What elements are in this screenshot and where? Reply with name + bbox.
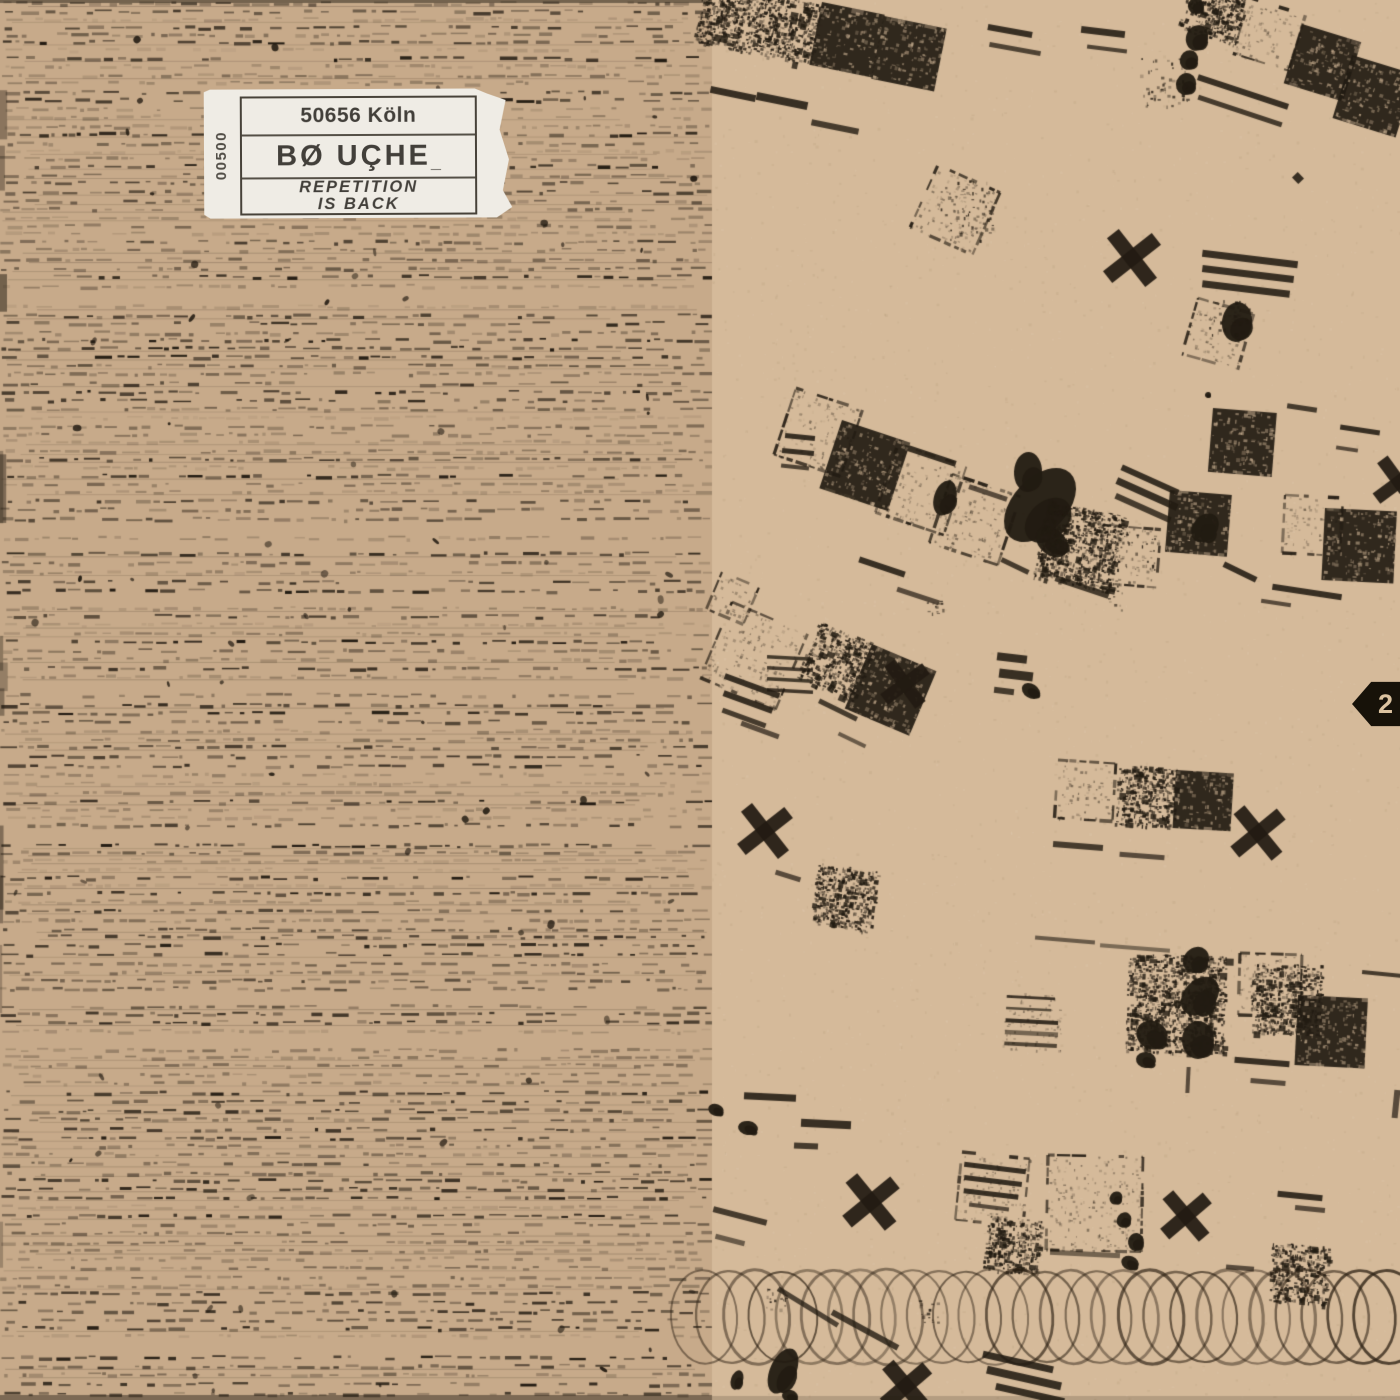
sticker-table: 50656 Köln BØ UÇHE _ REPETITION IS BACK <box>240 95 478 215</box>
stray-underscore-mark: _ <box>431 152 441 173</box>
subtitle-line1: REPETITION <box>299 178 418 196</box>
sticker-postcode: 50656 Köln <box>242 97 475 134</box>
edition-number: 00500 <box>213 118 231 194</box>
address-sticker: 00500 50656 Köln BØ UÇHE _ REPETITION IS… <box>204 88 513 218</box>
album-cover: 00500 50656 Köln BØ UÇHE _ REPETITION IS… <box>0 0 1400 1400</box>
side-2-number: 2 <box>1378 689 1400 720</box>
sticker-subtitle: REPETITION IS BACK <box>242 176 475 213</box>
artist-name-text: BØ UÇHE <box>276 140 431 174</box>
artist-name: BØ UÇHE _ <box>242 133 475 177</box>
subtitle-line2: IS BACK <box>318 196 400 214</box>
